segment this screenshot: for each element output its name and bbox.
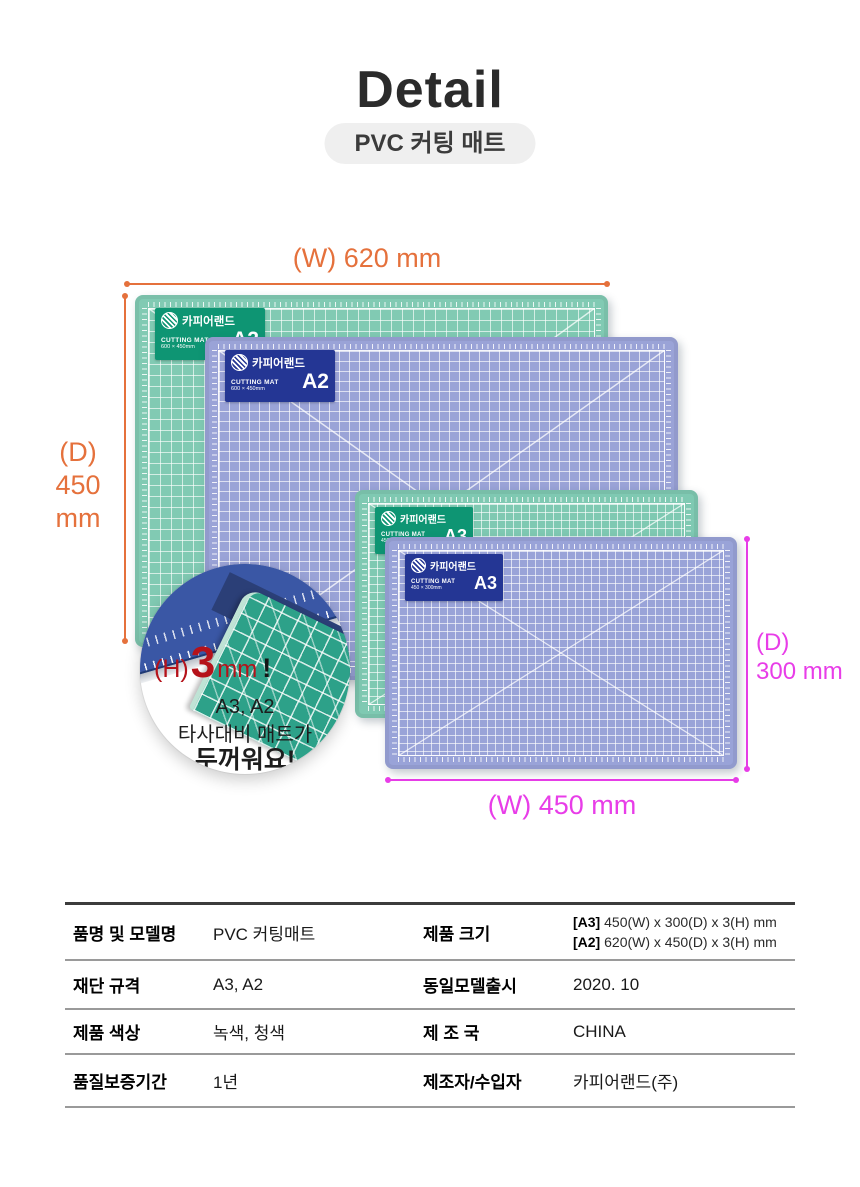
size-line-a3: [A3] 450(W) x 300(D) x 3(H) mm xyxy=(573,912,795,932)
brand-name: 카피어랜드 xyxy=(182,313,235,329)
spec-value: 녹색, 청색 xyxy=(213,1019,423,1044)
spec-row-color: 제품 색상 녹색, 청색 제 조 국 CHINA xyxy=(65,1010,795,1055)
thickness-value: (H)3mm! xyxy=(154,644,271,684)
spec-value: CHINA xyxy=(573,1022,795,1042)
spec-value: PVC 커팅매트 xyxy=(213,920,423,945)
spec-table: 품명 및 모델명 PVC 커팅매트 제품 크기 [A3] 450(W) x 30… xyxy=(65,902,795,1108)
badge-product-name: CUTTING MAT xyxy=(161,337,209,344)
spec-value: 2020. 10 xyxy=(573,975,795,995)
thickness-unit: mm xyxy=(217,656,257,684)
thickness-exclamation: ! xyxy=(262,653,271,684)
depth-450-label: (D) 450 mm xyxy=(32,436,124,535)
width-620-dimension-line xyxy=(126,283,608,285)
product-detail-page: Detail PVC 커팅 매트 (W) 620 mm (D) 450 mm (… xyxy=(0,0,860,1187)
depth-450-label-line2: 450 mm xyxy=(32,469,124,535)
ruler-ticks-top xyxy=(398,544,724,549)
spec-row-product-name: 품명 및 모델명 PVC 커팅매트 제품 크기 [A3] 450(W) x 30… xyxy=(65,905,795,961)
mat-badge: 카피어랜드 CUTTING MAT 600 × 450mm A2 xyxy=(225,350,335,402)
spec-value-product-size: [A3] 450(W) x 300(D) x 3(H) mm [A2] 620(… xyxy=(573,912,795,953)
spec-label: 제품 크기 xyxy=(423,920,573,945)
spec-value: 카피어랜드(주) xyxy=(573,1068,795,1093)
callout-line3: 두꺼워요! xyxy=(140,740,350,774)
spec-label: 제품 색상 xyxy=(65,1019,213,1044)
spec-value: 1년 xyxy=(213,1068,423,1093)
brand-name: 카피어랜드 xyxy=(430,558,476,573)
brand-logo-icon xyxy=(381,511,396,526)
mat-badge: 카피어랜드 CUTTING MAT 450 × 300mm A3 xyxy=(405,554,503,601)
page-title: Detail xyxy=(0,60,860,120)
ruler-ticks-top xyxy=(148,302,595,307)
cutting-mat-purple-a3: 카피어랜드 CUTTING MAT 450 × 300mm A3 xyxy=(385,537,737,769)
depth-300-label-line2: 300 mm xyxy=(756,657,843,686)
width-620-label: (W) 620 mm xyxy=(217,242,517,275)
badge-mat-dimensions: 600 × 450mm xyxy=(161,344,209,350)
spec-row-cut-size: 재단 규격 A3, A2 동일모델출시 2020. 10 xyxy=(65,961,795,1010)
brand-name: 카피어랜드 xyxy=(400,511,446,526)
thickness-h-label: (H) xyxy=(154,655,189,684)
badge-product-name: CUTTING MAT xyxy=(231,379,279,386)
spec-label: 동일모델출시 xyxy=(423,972,573,997)
ruler-ticks-top xyxy=(218,344,665,349)
width-450-label: (W) 450 mm xyxy=(412,789,712,822)
badge-mat-dimensions: 450 × 300mm xyxy=(411,585,455,591)
spec-label: 품명 및 모델명 xyxy=(65,920,213,945)
size-line-a2: [A2] 620(W) x 450(D) x 3(H) mm xyxy=(573,932,795,952)
depth-300-dimension-line xyxy=(746,538,748,770)
ruler-ticks-left xyxy=(362,503,367,705)
ruler-ticks-right xyxy=(725,550,730,756)
callout-line1: A3, A2 xyxy=(140,696,350,719)
brand-name: 카피어랜드 xyxy=(252,355,305,371)
spec-row-warranty: 품질보증기간 1년 제조자/수입자 카피어랜드(주) xyxy=(65,1055,795,1108)
thickness-number: 3 xyxy=(191,644,215,681)
ruler-ticks-left xyxy=(392,550,397,756)
callout-text: (H)3mm! A3, A2 타사대비 매트가 두꺼워요! xyxy=(140,564,350,774)
spec-label: 제 조 국 xyxy=(423,1019,573,1044)
ruler-ticks-bottom xyxy=(398,757,724,762)
spec-value: A3, A2 xyxy=(213,975,423,995)
depth-450-label-line1: (D) xyxy=(32,436,124,469)
spec-label: 제조자/수입자 xyxy=(423,1068,573,1093)
product-subtitle-pill: PVC 커팅 매트 xyxy=(324,123,535,164)
badge-mat-dimensions: 600 × 450mm xyxy=(231,386,279,392)
depth-300-label-line1: (D) xyxy=(756,628,843,657)
depth-450-dimension-line xyxy=(124,295,126,642)
brand-logo-icon xyxy=(411,558,426,573)
badge-size-code: A2 xyxy=(302,373,329,392)
spec-label: 재단 규격 xyxy=(65,972,213,997)
brand-logo-icon xyxy=(231,354,248,371)
width-450-dimension-line xyxy=(387,779,737,781)
spec-label: 품질보증기간 xyxy=(65,1068,213,1093)
ruler-ticks-top xyxy=(368,497,685,502)
thickness-callout: (H)3mm! A3, A2 타사대비 매트가 두꺼워요! xyxy=(140,564,350,774)
badge-size-code: A3 xyxy=(474,575,497,591)
depth-300-label: (D) 300 mm xyxy=(756,628,843,687)
brand-logo-icon xyxy=(161,312,178,329)
